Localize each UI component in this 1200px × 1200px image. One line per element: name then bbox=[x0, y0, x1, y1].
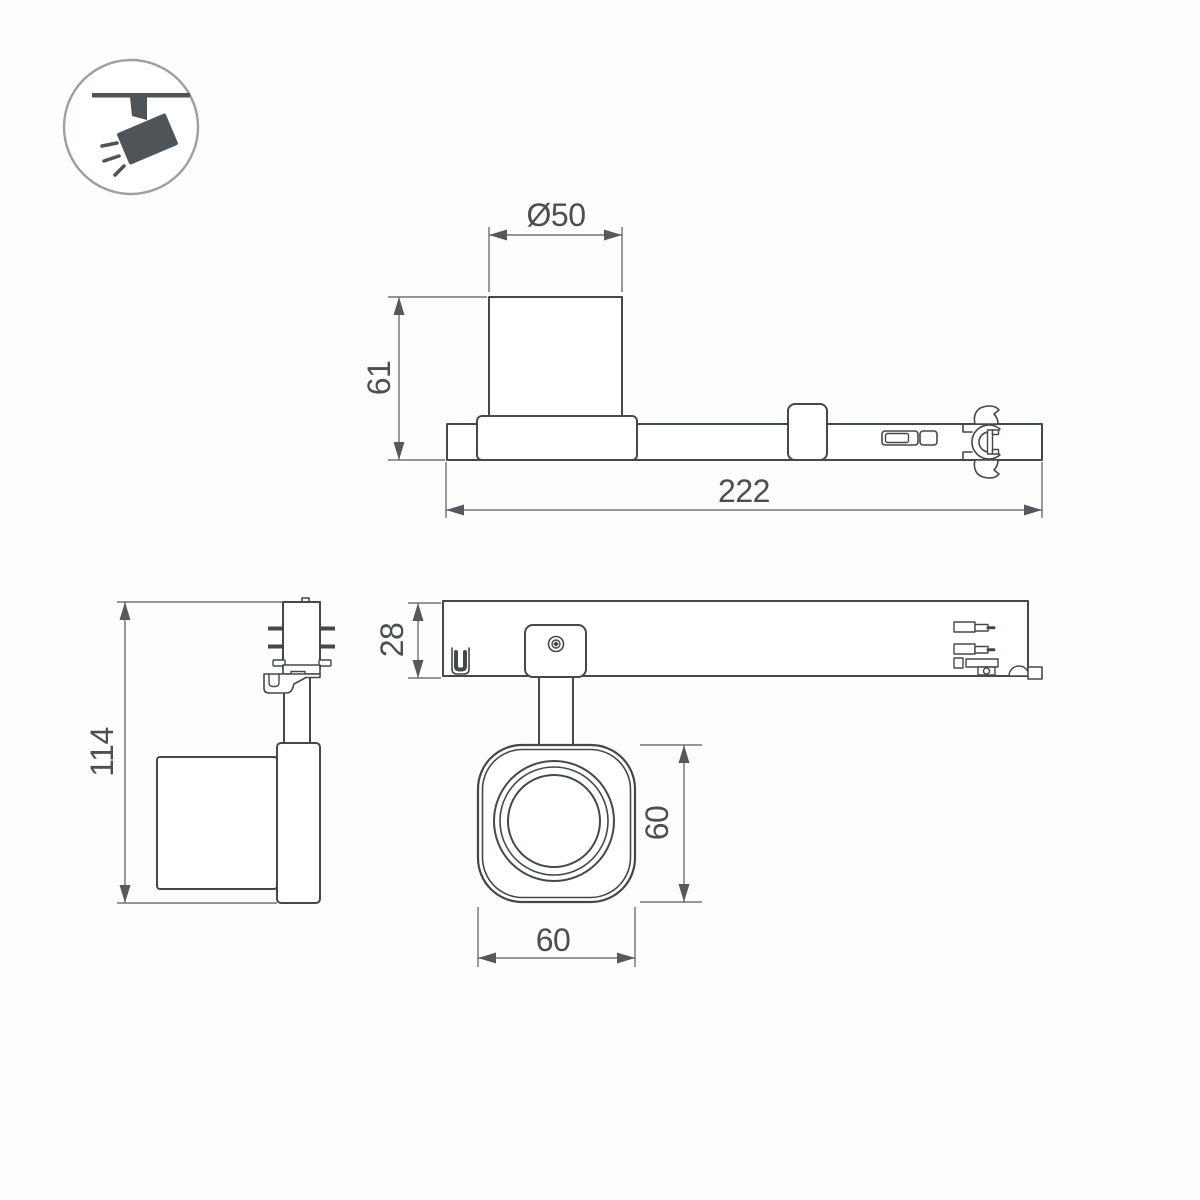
contact-tip bbox=[975, 625, 988, 632]
contact-pin bbox=[320, 645, 335, 649]
top-view bbox=[443, 601, 1042, 902]
contact-block bbox=[954, 644, 975, 654]
end-foot bbox=[1028, 667, 1042, 679]
technical-drawing-canvas: Ø50 61 222 bbox=[0, 0, 1200, 1200]
front-view-dimensions: Ø50 61 222 bbox=[361, 197, 1042, 518]
arrowhead bbox=[1024, 505, 1042, 516]
head-height-label: 60 bbox=[639, 806, 675, 841]
adapter-connector bbox=[283, 602, 320, 669]
arrowhead bbox=[120, 885, 131, 903]
contact-pin bbox=[268, 627, 284, 631]
side-view bbox=[157, 598, 335, 903]
ceiling-line bbox=[92, 93, 190, 98]
contact-tip bbox=[975, 647, 988, 654]
locking-hook bbox=[264, 674, 320, 693]
rail-width-extension-lines bbox=[408, 603, 441, 678]
latch-bar bbox=[966, 659, 998, 667]
height-label: 61 bbox=[361, 361, 397, 396]
ground-contact bbox=[954, 658, 963, 668]
slider-switch-end bbox=[920, 431, 937, 445]
diameter-extension-lines bbox=[489, 227, 622, 292]
clip-bottom-tab bbox=[974, 460, 999, 478]
contact-pin bbox=[320, 627, 335, 631]
arrowhead bbox=[394, 442, 405, 460]
swivel-arm bbox=[539, 677, 573, 747]
length-label: 222 bbox=[718, 473, 770, 509]
mounting-plate bbox=[477, 416, 637, 460]
arrowhead bbox=[489, 230, 507, 241]
lamp-body-side bbox=[277, 743, 320, 903]
contact-block bbox=[954, 622, 975, 632]
arrowhead bbox=[413, 603, 424, 621]
lamp-head-bottom bbox=[478, 745, 635, 902]
head-width-label: 60 bbox=[536, 922, 571, 958]
arrowhead bbox=[446, 505, 464, 516]
slider-switch-knob bbox=[886, 434, 909, 443]
overall-height-label: 114 bbox=[84, 727, 120, 777]
luminaire-dimension-drawing: Ø50 61 222 bbox=[0, 0, 1200, 1200]
lamp-cylinder bbox=[489, 297, 622, 416]
front-view bbox=[447, 297, 1042, 478]
arrowhead bbox=[604, 230, 622, 241]
clip-bar bbox=[988, 430, 993, 454]
arrowhead bbox=[120, 602, 131, 620]
adapter-box bbox=[788, 404, 827, 460]
arrowhead bbox=[679, 745, 690, 763]
arrowhead bbox=[394, 297, 405, 315]
arrowhead bbox=[617, 953, 635, 964]
clip-bar-cap-top bbox=[993, 430, 999, 435]
arrowhead bbox=[478, 953, 496, 964]
arrowhead bbox=[679, 884, 690, 902]
clip-top-tab bbox=[974, 406, 999, 424]
lamp-head-side bbox=[157, 757, 277, 889]
diameter-label: Ø50 bbox=[527, 197, 586, 233]
contact-pin bbox=[268, 645, 284, 649]
rail-width-label: 28 bbox=[374, 623, 410, 658]
icon-circle bbox=[64, 60, 198, 194]
arrowhead bbox=[413, 660, 424, 678]
track-spotlight-icon bbox=[64, 60, 198, 194]
clip-bar-cap-bottom bbox=[993, 450, 999, 455]
